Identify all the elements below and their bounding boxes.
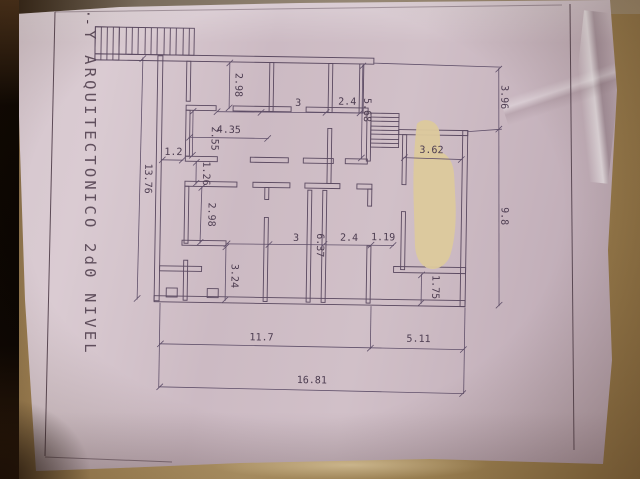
dimension-labels: 13.76 2.98 3 2.4 5.68 3.96 4.35 2.55 1.2… xyxy=(139,71,512,389)
title-marks: ·- xyxy=(80,10,95,26)
stairs-top-left xyxy=(95,27,195,62)
dim-label: 1.2 xyxy=(164,147,182,158)
dim-label: 9.8 xyxy=(498,207,509,225)
correction-patch xyxy=(412,120,457,269)
title-text: Y ARQUITECTONICO 2d0 NIVEL xyxy=(81,30,99,356)
dim-label: 3.24 xyxy=(228,264,239,288)
paper-sheet: ·- Y ARQUITECTONICO 2d0 NIVEL xyxy=(0,0,640,479)
dim-label: 3.96 xyxy=(498,85,509,109)
table-shadow-corner xyxy=(0,399,90,479)
dim-label: 1.26 xyxy=(200,161,211,185)
dim-label: 1.19 xyxy=(371,232,395,243)
dim-label: 2.4 xyxy=(338,97,356,108)
dim-label: 5.68 xyxy=(361,98,372,122)
dim-label: 5.11 xyxy=(406,334,430,345)
frame-border xyxy=(45,4,574,462)
dim-label: 13.76 xyxy=(142,163,153,193)
dim-label: 2.98 xyxy=(232,73,243,97)
dim-label: 3.62 xyxy=(419,145,443,156)
dim-label: 1.75 xyxy=(429,275,440,299)
dim-label: 2.4 xyxy=(340,233,358,244)
dim-label: 6.37 xyxy=(314,233,325,257)
dim-label: 3 xyxy=(293,233,299,244)
dim-label: 2.55 xyxy=(208,127,219,151)
floor-plan-drawing: 13.76 2.98 3 2.4 5.68 3.96 4.35 2.55 1.2… xyxy=(90,27,513,398)
photo-of-floor-plan: ·- Y ARQUITECTONICO 2d0 NIVEL xyxy=(0,0,640,479)
dim-label: 16.81 xyxy=(297,375,327,386)
dim-label: 2.98 xyxy=(205,202,216,226)
dim-label: 3 xyxy=(295,98,301,109)
dim-label: 11.7 xyxy=(249,332,273,343)
floor-plan-svg: ·- Y ARQUITECTONICO 2d0 NIVEL xyxy=(0,0,640,479)
